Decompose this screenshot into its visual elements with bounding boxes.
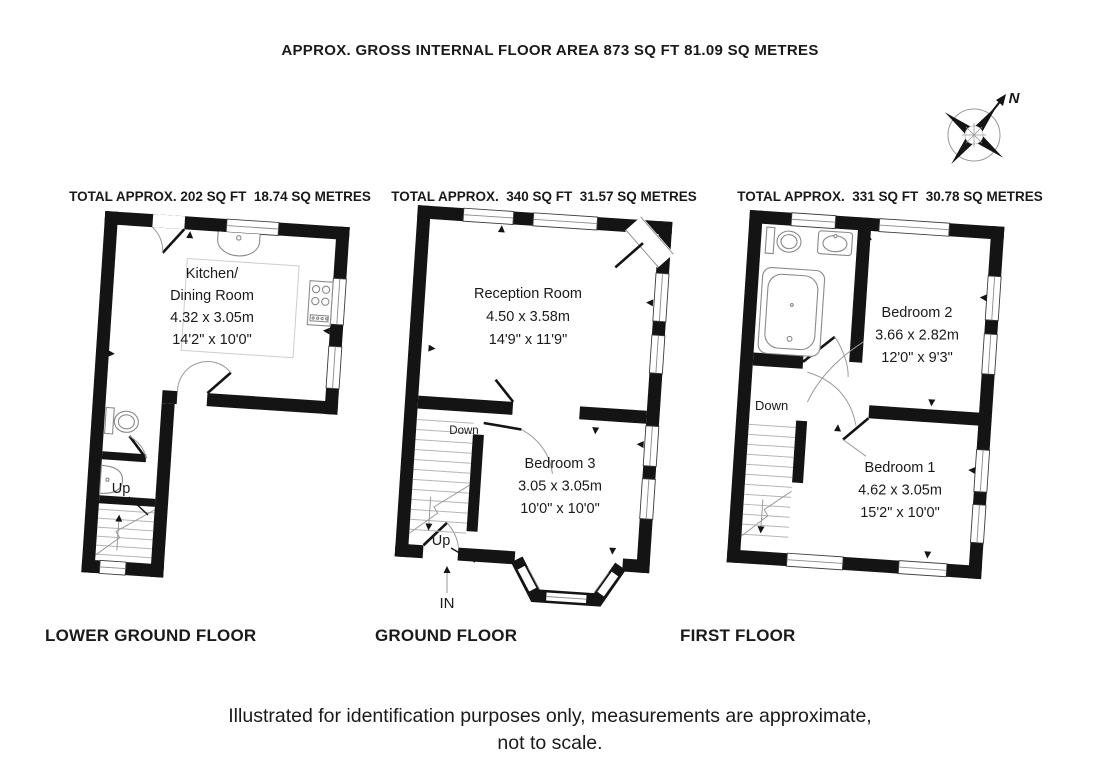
bedroom2-dim-metric: 3.66 x 2.82m <box>875 328 959 344</box>
north-label: N <box>1009 90 1021 107</box>
hob-icon <box>307 281 333 326</box>
down-label-first: Down <box>755 398 788 413</box>
bedroom1-name: Bedroom 1 <box>865 460 936 476</box>
bedroom3-dim-imperial: 10'0" x 10'0" <box>520 501 600 517</box>
walls-ground <box>395 205 673 573</box>
windows-first <box>769 213 1005 579</box>
gross-area-title: APPROX. GROSS INTERNAL FLOOR AREA 873 SQ… <box>0 42 1100 59</box>
bedroom2-dim-imperial: 12'0" x 9'3" <box>881 350 952 366</box>
walls-first <box>727 210 1005 579</box>
reception-dim-imperial: 14'9" x 11'9" <box>489 332 567 348</box>
bedroom3-name: Bedroom 3 <box>525 456 596 472</box>
floor-plan-ground: Reception Room 4.50 x 3.58m 14'9" x 11'9… <box>375 205 685 625</box>
up-label-ground: Up <box>432 533 451 549</box>
floor-plan-lower-ground: Kitchen/ Dining Room 4.32 x 3.05m 14'2" … <box>55 210 365 610</box>
floorplan-page: APPROX. GROSS INTERNAL FLOOR AREA 873 SQ… <box>0 0 1100 777</box>
room-label-reception: Reception Room 4.50 x 3.58m 14'9" x 11'9… <box>474 286 582 348</box>
disclaimer: Illustrated for identification purposes … <box>0 703 1100 757</box>
kitchen-sink-icon <box>217 232 260 258</box>
bedroom1-dim-imperial: 15'2" x 10'0" <box>860 505 940 521</box>
reception-dim-metric: 4.50 x 3.58m <box>486 309 570 325</box>
floor-name-ground: GROUND FLOOR <box>375 626 517 646</box>
bedroom3-dim-metric: 3.05 x 3.05m <box>518 479 602 495</box>
compass-rose: N <box>926 82 1030 182</box>
kitchen-name-line2: Dining Room <box>170 288 254 304</box>
floor-plan-first: Bedroom 2 3.66 x 2.82m 12'0" x 9'3" Bedr… <box>710 210 1020 600</box>
disclaimer-line1: Illustrated for identification purposes … <box>0 703 1100 730</box>
room-label-bedroom2: Bedroom 2 3.66 x 2.82m 12'0" x 9'3" <box>875 305 959 366</box>
in-arrowhead <box>444 566 451 573</box>
toilet-icon-ff <box>765 227 802 255</box>
bedroom1-dim-metric: 4.62 x 3.05m <box>858 483 942 499</box>
bedroom2-name: Bedroom 2 <box>882 305 953 321</box>
stairs-ground <box>409 420 473 538</box>
room-label-kitchen: Kitchen/ Dining Room 4.32 x 3.05m 14'2" … <box>170 266 254 348</box>
area-label-ground: TOTAL APPROX. 340 SQ FT 31.57 SQ METRES <box>368 189 720 204</box>
floor-name-first: FIRST FLOOR <box>680 626 796 646</box>
area-label-lower-ground: TOTAL APPROX. 202 SQ FT 18.74 SQ METRES <box>40 189 400 204</box>
room-label-bedroom3: Bedroom 3 3.05 x 3.05m 10'0" x 10'0" <box>518 456 602 517</box>
kitchen-name-line1: Kitchen/ <box>186 266 239 282</box>
floor-name-lower-ground: LOWER GROUND FLOOR <box>45 626 256 646</box>
bathtub-icon <box>758 267 826 357</box>
kitchen-dim-imperial: 14'2" x 10'0" <box>172 332 252 348</box>
kitchen-dim-metric: 4.32 x 3.05m <box>170 310 254 326</box>
bay-window <box>514 559 620 601</box>
basin-icon-ff <box>817 231 852 256</box>
stairs-first <box>741 424 795 539</box>
area-label-first: TOTAL APPROX. 331 SQ FT 30.78 SQ METRES <box>712 189 1068 204</box>
reception-name: Reception Room <box>474 286 582 302</box>
disclaimer-line2: not to scale. <box>0 730 1100 757</box>
toilet-icon-lgf <box>105 407 140 435</box>
stairs-lower-ground <box>95 506 154 559</box>
down-label-ground: Down <box>449 425 478 437</box>
up-label-lgf: Up <box>112 481 131 497</box>
room-label-bedroom1: Bedroom 1 4.62 x 3.05m 15'2" x 10'0" <box>858 460 942 521</box>
in-label: IN <box>440 595 455 612</box>
